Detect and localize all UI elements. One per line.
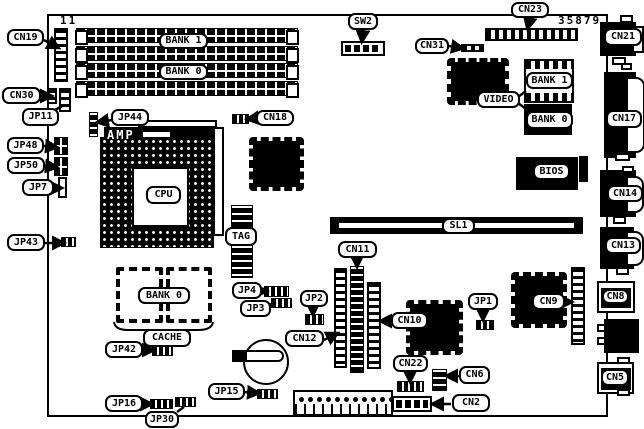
edge-tab-9 xyxy=(617,389,630,396)
label-bank0-video: BANK 0 xyxy=(526,111,573,129)
battery xyxy=(243,339,289,385)
jp50-block xyxy=(54,157,68,176)
label-jp11: JP11 xyxy=(22,108,59,126)
label-jp15: JP15 xyxy=(208,383,245,400)
jp30-pins xyxy=(175,397,196,407)
label-cn31: CN31 xyxy=(415,38,449,54)
label-sw2: SW2 xyxy=(348,13,378,30)
jp44-pins xyxy=(89,112,98,137)
label-cn21: CN21 xyxy=(604,28,642,46)
right-inner-block xyxy=(579,156,588,182)
jp43-jumper xyxy=(61,237,76,247)
label-cn9: CN9 xyxy=(532,293,565,310)
label-jp4: JP4 xyxy=(232,282,262,299)
label-video: VIDEO xyxy=(477,91,520,108)
cpu-side-bar xyxy=(213,127,224,236)
cn30-connector-a xyxy=(47,88,57,104)
label-cn22: CN22 xyxy=(393,355,428,372)
label-cn19: CN19 xyxy=(7,29,44,46)
sw2-dip-switch xyxy=(341,41,385,56)
jp2-jumper xyxy=(305,314,324,325)
edge-tab-8 xyxy=(617,357,630,364)
label-jp16: JP16 xyxy=(105,395,143,412)
cn9-connector xyxy=(571,267,585,345)
label-cn18: CN18 xyxy=(256,110,294,126)
label-cn6: CN6 xyxy=(459,366,490,384)
label-cpu: CPU xyxy=(146,186,181,204)
cn2-connector xyxy=(392,396,432,412)
edge-tab-7 xyxy=(616,267,629,275)
jp48-block xyxy=(54,137,68,155)
label-cn10: CN10 xyxy=(391,312,428,329)
cn31-pins xyxy=(461,44,484,52)
cn10-connector xyxy=(367,282,381,369)
label-jp3: JP3 xyxy=(240,300,271,317)
label-bank1-simm: BANK 1 xyxy=(159,33,208,49)
edge-tab-b xyxy=(597,337,606,345)
label-jp2: JP2 xyxy=(300,290,328,307)
label-jp42: JP42 xyxy=(105,341,143,358)
label-sl1: SL1 xyxy=(442,218,475,234)
label-bank0-cache: BANK 0 xyxy=(138,287,190,304)
label-cache: CACHE xyxy=(143,329,191,347)
label-jp7: JP7 xyxy=(22,179,54,196)
label-bios: BIOS xyxy=(533,163,570,180)
label-tag: TAG xyxy=(225,227,257,246)
label-cn17: CN17 xyxy=(606,110,642,128)
label-cn23: CN23 xyxy=(511,2,549,18)
label-jp48: JP48 xyxy=(7,137,44,154)
edge-tab-5 xyxy=(622,166,634,173)
label-cn30: CN30 xyxy=(2,87,41,104)
label-cn12: CN12 xyxy=(285,330,324,347)
label-cn8: CN8 xyxy=(602,289,629,304)
label-cn5: CN5 xyxy=(601,369,629,386)
cn12-connector xyxy=(334,268,347,368)
jp15-jumper xyxy=(257,389,278,399)
edge-tab-6 xyxy=(613,216,626,224)
jp42-jumper xyxy=(152,346,173,356)
label-cn2: CN2 xyxy=(452,394,490,412)
cn30-connector-b xyxy=(59,88,71,112)
jp7-box xyxy=(58,177,67,198)
chipset-chip xyxy=(249,137,304,191)
bottom-pin-header xyxy=(293,390,393,416)
jp4-jumper xyxy=(264,286,289,297)
tag-chip-bottom xyxy=(231,245,253,278)
pin1-indicator-text: 11 xyxy=(60,14,77,27)
jp1-jumper xyxy=(476,320,494,330)
edge-tab-1 xyxy=(620,15,633,23)
edge-tab-4 xyxy=(615,153,630,161)
cn11-connector xyxy=(350,266,364,373)
edge-tab-a xyxy=(597,324,606,332)
edge-black-connector xyxy=(604,319,639,353)
simm-slot-4 xyxy=(76,81,298,96)
label-jp44: JP44 xyxy=(111,109,149,126)
label-bank1-video: BANK 1 xyxy=(526,72,573,89)
label-jp1: JP1 xyxy=(468,293,498,310)
battery-clip xyxy=(232,350,284,362)
edge-tab-3 xyxy=(621,63,632,70)
cn23-connector xyxy=(485,28,578,41)
cn6-connector xyxy=(432,369,447,391)
label-cn11: CN11 xyxy=(338,241,377,258)
cn19-connector xyxy=(54,28,68,82)
label-jp43: JP43 xyxy=(7,234,45,251)
label-cn14: CN14 xyxy=(607,185,643,202)
cn22-connector xyxy=(397,381,424,392)
jp3-jumper xyxy=(271,298,292,308)
amp-chip-text: AMP xyxy=(107,128,135,142)
motherboard-diagram: CN19CN30JP11JP48JP50JP7JP43JP44CN18SW2CN… xyxy=(0,0,644,429)
jp16-jumper xyxy=(150,399,173,409)
label-jp30: JP30 xyxy=(145,411,179,428)
part-number-text: 35879 xyxy=(558,14,601,27)
label-bank0-simm: BANK 0 xyxy=(159,64,208,80)
cn18-pins xyxy=(232,114,249,124)
label-jp50: JP50 xyxy=(7,157,45,174)
label-cn13: CN13 xyxy=(605,237,641,254)
